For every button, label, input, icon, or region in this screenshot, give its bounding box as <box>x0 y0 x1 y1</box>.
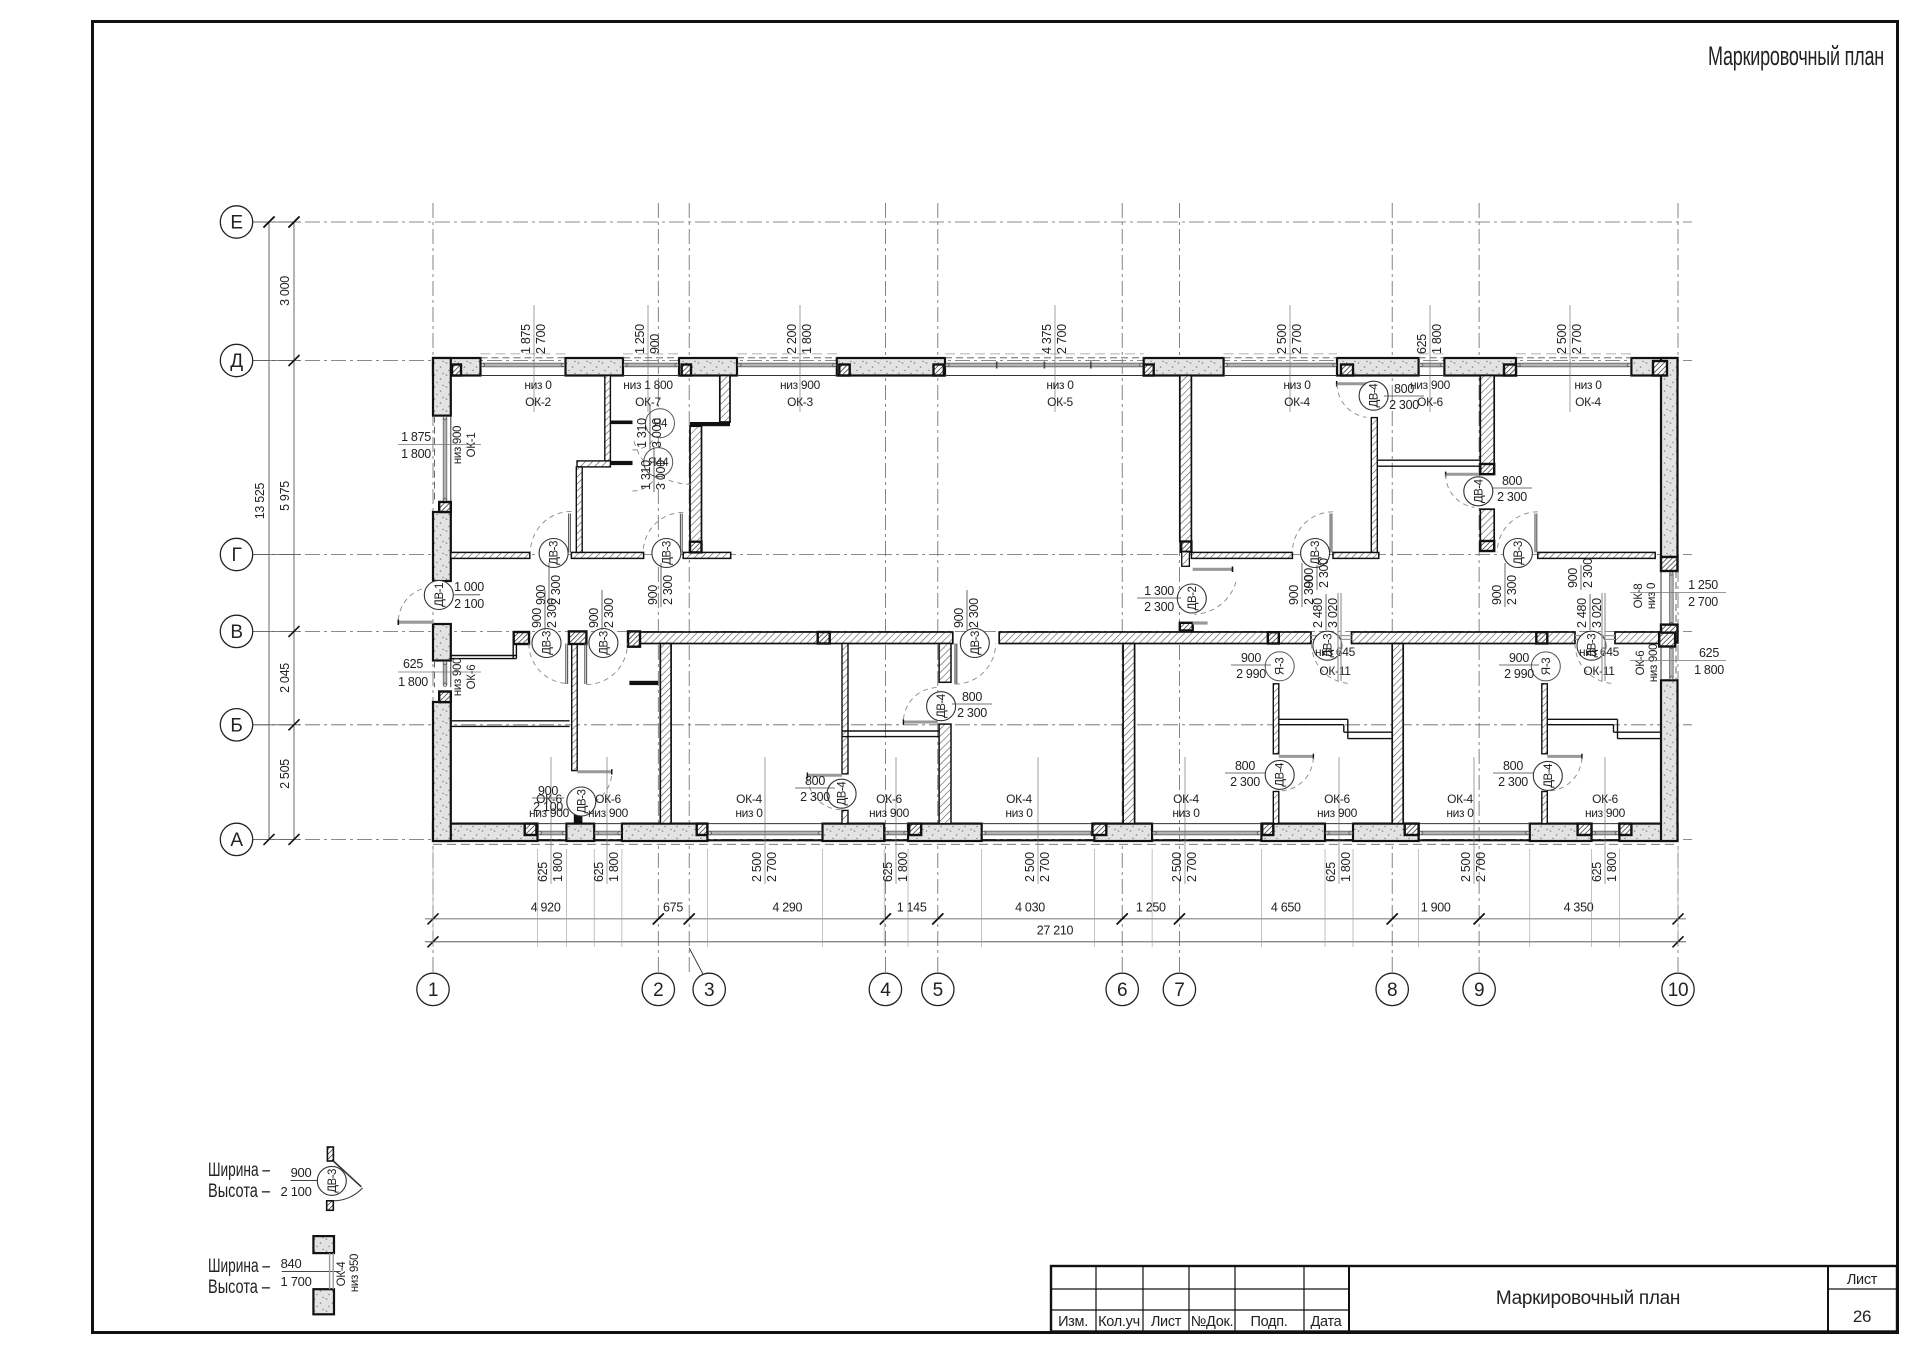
svg-text:А: А <box>230 830 243 851</box>
svg-text:900: 900 <box>1509 651 1529 665</box>
svg-text:900: 900 <box>530 608 544 628</box>
svg-text:625: 625 <box>1415 334 1429 354</box>
svg-text:ОК-4: ОК-4 <box>1173 792 1199 806</box>
svg-text:2 700: 2 700 <box>765 852 779 882</box>
svg-text:9: 9 <box>1474 980 1484 1001</box>
svg-text:1 875: 1 875 <box>519 324 533 354</box>
svg-text:низ 645: низ 645 <box>1315 645 1356 659</box>
svg-text:840: 840 <box>281 1256 302 1271</box>
svg-text:1 145: 1 145 <box>897 901 927 915</box>
svg-text:900: 900 <box>1566 568 1580 588</box>
svg-text:3 000: 3 000 <box>654 460 668 490</box>
svg-text:2 505: 2 505 <box>278 759 292 789</box>
svg-text:ДВ-4: ДВ-4 <box>1543 763 1555 788</box>
svg-text:2 500: 2 500 <box>1459 852 1473 882</box>
svg-text:1 800: 1 800 <box>551 852 565 882</box>
svg-text:4 650: 4 650 <box>1271 901 1301 915</box>
svg-text:низ 900: низ 900 <box>452 426 464 464</box>
svg-text:2 700: 2 700 <box>1055 324 1069 354</box>
svg-text:2 700: 2 700 <box>1474 852 1488 882</box>
svg-text:ОК-1: ОК-1 <box>466 433 478 458</box>
svg-text:ДВ-3: ДВ-3 <box>327 1169 339 1193</box>
svg-text:2 300: 2 300 <box>661 575 675 605</box>
svg-text:низ 900: низ 900 <box>588 806 629 820</box>
svg-text:2 480: 2 480 <box>1575 598 1589 628</box>
svg-text:2 100: 2 100 <box>280 1184 311 1199</box>
svg-text:2 045: 2 045 <box>278 663 292 693</box>
svg-text:2 100: 2 100 <box>533 800 563 814</box>
svg-text:2 300: 2 300 <box>1230 775 1260 789</box>
svg-text:625: 625 <box>592 862 606 882</box>
svg-text:2 300: 2 300 <box>1302 575 1316 605</box>
svg-text:ОК-6: ОК-6 <box>1417 395 1443 409</box>
svg-text:900: 900 <box>952 608 966 628</box>
svg-text:низ 0: низ 0 <box>735 806 763 820</box>
svg-text:низ 0: низ 0 <box>1172 806 1200 820</box>
svg-text:625: 625 <box>1699 646 1719 660</box>
svg-text:Д: Д <box>230 351 243 372</box>
svg-text:1: 1 <box>428 980 438 1001</box>
svg-text:ОК-5: ОК-5 <box>1047 395 1073 409</box>
svg-text:Кол.уч: Кол.уч <box>1098 1314 1140 1330</box>
svg-text:2 100: 2 100 <box>454 597 484 611</box>
svg-text:27 210: 27 210 <box>1037 923 1074 937</box>
svg-text:ОК-4: ОК-4 <box>1006 792 1032 806</box>
svg-text:ДВ-4: ДВ-4 <box>936 693 948 718</box>
svg-text:ОК-4: ОК-4 <box>1575 395 1601 409</box>
svg-text:7: 7 <box>1174 980 1184 1001</box>
svg-text:ОК-6: ОК-6 <box>595 792 621 806</box>
svg-text:800: 800 <box>1235 759 1255 773</box>
svg-text:Г: Г <box>232 545 242 566</box>
svg-text:низ 0: низ 0 <box>1646 583 1658 609</box>
svg-text:низ 645: низ 645 <box>1579 645 1620 659</box>
svg-text:низ 0: низ 0 <box>1283 378 1311 392</box>
svg-text:5 975: 5 975 <box>278 481 292 511</box>
svg-text:В: В <box>230 622 242 643</box>
svg-text:Я-3: Я-3 <box>1541 658 1553 676</box>
svg-text:2 990: 2 990 <box>1504 667 1534 681</box>
svg-text:2 300: 2 300 <box>1497 490 1527 504</box>
svg-text:2 300: 2 300 <box>602 598 616 628</box>
svg-text:2 300: 2 300 <box>1144 600 1174 614</box>
svg-text:2 300: 2 300 <box>545 598 559 628</box>
svg-text:4 375: 4 375 <box>1040 324 1054 354</box>
svg-text:2 990: 2 990 <box>1236 667 1266 681</box>
svg-text:ОК-4: ОК-4 <box>736 792 762 806</box>
svg-text:ДВ-3: ДВ-3 <box>970 631 982 655</box>
svg-text:низ 950: низ 950 <box>349 1254 361 1292</box>
svg-text:Изм.: Изм. <box>1058 1314 1088 1330</box>
svg-text:ОК-4: ОК-4 <box>1284 395 1310 409</box>
svg-text:низ 900: низ 900 <box>780 378 821 392</box>
svg-text:низ 0: низ 0 <box>524 378 552 392</box>
svg-text:2 700: 2 700 <box>1688 595 1718 609</box>
svg-text:1 310: 1 310 <box>635 418 649 448</box>
svg-text:Я-3: Я-3 <box>1275 657 1287 675</box>
svg-text:1 800: 1 800 <box>401 447 431 461</box>
svg-text:4 920: 4 920 <box>531 901 561 915</box>
svg-text:ДВ-4: ДВ-4 <box>1369 383 1381 408</box>
svg-text:1 000: 1 000 <box>454 580 484 594</box>
svg-text:низ 0: низ 0 <box>1446 806 1474 820</box>
svg-text:800: 800 <box>1502 474 1522 488</box>
svg-text:Высота –: Высота – <box>208 1181 270 1202</box>
svg-text:800: 800 <box>1503 759 1523 773</box>
svg-text:ОК-4: ОК-4 <box>1447 792 1473 806</box>
svg-text:низ 900: низ 900 <box>1648 644 1660 682</box>
svg-text:2 300: 2 300 <box>1498 775 1528 789</box>
svg-text:ОК-4: ОК-4 <box>336 1261 348 1287</box>
svg-text:2 500: 2 500 <box>1275 324 1289 354</box>
svg-text:ОК-6: ОК-6 <box>1324 792 1350 806</box>
svg-text:625: 625 <box>881 862 895 882</box>
svg-text:675: 675 <box>663 901 683 915</box>
svg-text:2 300: 2 300 <box>1505 575 1519 605</box>
svg-text:ДВ-3: ДВ-3 <box>1513 541 1525 565</box>
svg-text:900: 900 <box>646 585 660 605</box>
svg-text:1 800: 1 800 <box>800 324 814 354</box>
svg-text:низ 0: низ 0 <box>1005 806 1033 820</box>
svg-text:Дата: Дата <box>1311 1314 1343 1330</box>
svg-text:5: 5 <box>933 980 943 1001</box>
svg-text:ОК-6: ОК-6 <box>466 665 478 690</box>
svg-text:ОК-3: ОК-3 <box>787 395 813 409</box>
svg-text:ДВ-3: ДВ-3 <box>542 631 554 655</box>
svg-text:2 700: 2 700 <box>1290 324 1304 354</box>
svg-text:2 700: 2 700 <box>1038 852 1052 882</box>
svg-text:1 900: 1 900 <box>1421 901 1451 915</box>
svg-text:1 250: 1 250 <box>633 324 647 354</box>
svg-text:800: 800 <box>805 774 825 788</box>
svg-text:низ 900: низ 900 <box>869 806 910 820</box>
svg-text:2 300: 2 300 <box>967 598 981 628</box>
svg-text:900: 900 <box>291 1165 312 1180</box>
svg-text:800: 800 <box>962 690 982 704</box>
svg-text:4 350: 4 350 <box>1564 901 1594 915</box>
svg-text:ОК-2: ОК-2 <box>525 395 551 409</box>
svg-text:ОК-7: ОК-7 <box>635 395 661 409</box>
svg-text:2 300: 2 300 <box>1581 558 1595 588</box>
svg-text:Б: Б <box>230 715 242 736</box>
svg-text:ОК-6: ОК-6 <box>1592 792 1618 806</box>
svg-text:2 300: 2 300 <box>800 790 830 804</box>
svg-text:625: 625 <box>536 862 550 882</box>
svg-text:Маркировочный план: Маркировочный план <box>1496 1288 1680 1309</box>
svg-text:№Док.: №Док. <box>1191 1314 1233 1330</box>
svg-text:10: 10 <box>1668 980 1689 1001</box>
svg-text:ОК-6: ОК-6 <box>1635 651 1647 676</box>
svg-text:1 310: 1 310 <box>639 460 653 490</box>
svg-text:ОК-11: ОК-11 <box>1319 664 1351 678</box>
svg-text:ДВ-3: ДВ-3 <box>576 790 588 814</box>
svg-text:900: 900 <box>1490 585 1504 605</box>
svg-text:2 500: 2 500 <box>1170 852 1184 882</box>
svg-text:Маркировочный план: Маркировочный план <box>1708 41 1884 71</box>
svg-text:Подп.: Подп. <box>1250 1314 1287 1330</box>
svg-text:3 000: 3 000 <box>650 418 664 448</box>
svg-text:1 300: 1 300 <box>1144 584 1174 598</box>
svg-text:ДВ-3: ДВ-3 <box>661 541 673 565</box>
svg-text:Высота –: Высота – <box>208 1277 270 1298</box>
svg-text:низ 900: низ 900 <box>452 658 464 696</box>
svg-text:2 500: 2 500 <box>750 852 764 882</box>
svg-text:900: 900 <box>538 784 558 798</box>
svg-text:900: 900 <box>648 334 662 354</box>
svg-text:Ширина –: Ширина – <box>208 1256 270 1277</box>
svg-text:1 800: 1 800 <box>1694 663 1724 677</box>
svg-text:1 800: 1 800 <box>1430 324 1444 354</box>
svg-text:2 300: 2 300 <box>1389 398 1419 412</box>
svg-text:2 300: 2 300 <box>957 706 987 720</box>
svg-text:900: 900 <box>1287 585 1301 605</box>
svg-text:ОК-11: ОК-11 <box>1583 664 1615 678</box>
svg-text:ДВ-2: ДВ-2 <box>1187 587 1199 611</box>
svg-text:8: 8 <box>1387 980 1397 1001</box>
svg-text:Е: Е <box>230 213 242 234</box>
svg-text:ДВ-3: ДВ-3 <box>598 631 610 655</box>
svg-text:4: 4 <box>880 980 891 1001</box>
svg-text:ДВ-1: ДВ-1 <box>434 583 446 607</box>
svg-text:2 700: 2 700 <box>1185 852 1199 882</box>
svg-text:1 800: 1 800 <box>1605 852 1619 882</box>
svg-text:низ 900: низ 900 <box>1317 806 1358 820</box>
svg-text:800: 800 <box>1394 382 1414 396</box>
svg-text:900: 900 <box>1241 651 1261 665</box>
svg-text:2 200: 2 200 <box>785 324 799 354</box>
svg-text:ДВ-4: ДВ-4 <box>837 781 849 806</box>
svg-text:низ 0: низ 0 <box>1046 378 1074 392</box>
svg-text:2 500: 2 500 <box>1555 324 1569 354</box>
svg-text:ОК-6: ОК-6 <box>876 792 902 806</box>
svg-text:2 700: 2 700 <box>534 324 548 354</box>
svg-text:625: 625 <box>403 657 423 671</box>
svg-text:1 875: 1 875 <box>401 430 431 444</box>
svg-text:2 700: 2 700 <box>1570 324 1584 354</box>
svg-text:ДВ-3: ДВ-3 <box>549 541 561 565</box>
svg-text:Ширина –: Ширина – <box>208 1160 270 1181</box>
svg-text:4 030: 4 030 <box>1015 901 1045 915</box>
svg-text:Лист: Лист <box>1151 1314 1182 1330</box>
svg-text:ОК-8: ОК-8 <box>1633 584 1645 609</box>
svg-text:1 800: 1 800 <box>1339 852 1353 882</box>
svg-text:1 250: 1 250 <box>1136 901 1166 915</box>
svg-text:900: 900 <box>587 608 601 628</box>
svg-text:ДВ-4: ДВ-4 <box>1473 478 1485 503</box>
svg-text:6: 6 <box>1117 980 1127 1001</box>
svg-text:26: 26 <box>1853 1307 1871 1326</box>
svg-text:2 300: 2 300 <box>1317 558 1331 588</box>
svg-text:3 000: 3 000 <box>278 276 292 306</box>
svg-text:Лист: Лист <box>1847 1272 1878 1288</box>
svg-text:ДВ-4: ДВ-4 <box>1275 762 1287 787</box>
svg-text:2 500: 2 500 <box>1023 852 1037 882</box>
svg-text:3: 3 <box>704 980 714 1001</box>
svg-text:1 800: 1 800 <box>398 675 428 689</box>
svg-text:1 700: 1 700 <box>280 1274 311 1289</box>
svg-text:низ 0: низ 0 <box>1574 378 1602 392</box>
svg-text:1 800: 1 800 <box>896 852 910 882</box>
svg-text:низ 900: низ 900 <box>1410 378 1451 392</box>
svg-text:1 250: 1 250 <box>1688 578 1718 592</box>
svg-text:13 525: 13 525 <box>253 482 267 519</box>
svg-text:4 290: 4 290 <box>772 901 802 915</box>
svg-text:низ 900: низ 900 <box>1585 806 1626 820</box>
svg-text:625: 625 <box>1590 862 1604 882</box>
svg-text:1 800: 1 800 <box>607 852 621 882</box>
svg-text:2: 2 <box>653 980 663 1001</box>
svg-text:625: 625 <box>1324 862 1338 882</box>
svg-text:низ 1 800: низ 1 800 <box>623 378 673 392</box>
